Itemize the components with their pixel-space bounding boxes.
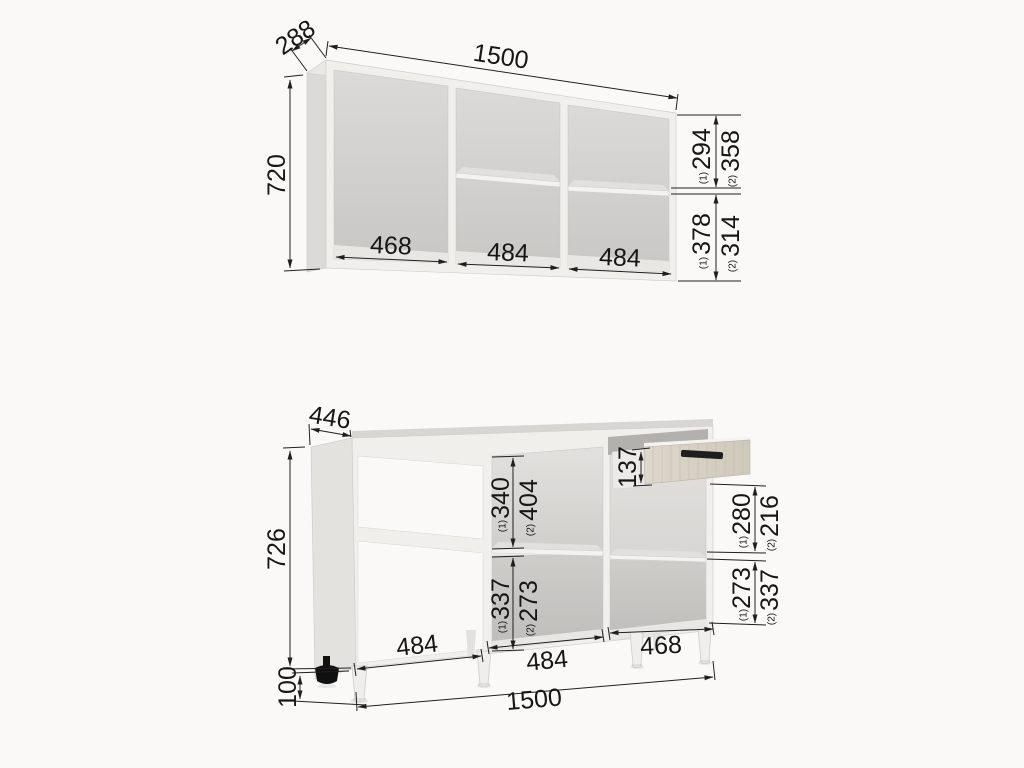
variant-2-superscript: (2): [728, 260, 739, 272]
base-right-top-opt2-label: 216: [756, 495, 784, 537]
base-width-label: 1500: [505, 683, 563, 716]
variant-1-superscript: (1): [739, 536, 750, 548]
wall-height-label: 720: [263, 154, 291, 196]
wall-cabinet-drawing: 288 1500 720 (1) 294 (2) 358 (1) 378 (2)…: [263, 14, 745, 281]
wall-depth-label: 288: [270, 14, 320, 61]
base-mid-top-opt1-label: 340: [487, 477, 515, 519]
cabinet-dimensions-svg: 288 1500 720 (1) 294 (2) 358 (1) 378 (2)…: [0, 0, 1024, 768]
variant-2-superscript: (2): [526, 524, 537, 536]
base-side-panel: [311, 438, 356, 679]
base-inner-width-1-label: 484: [395, 629, 440, 662]
wall-width-label: 1500: [471, 39, 530, 75]
product-dimension-diagram: 288 1500 720 (1) 294 (2) 358 (1) 378 (2)…: [0, 0, 1024, 768]
wall-right-bottom-opt2-label: 314: [717, 215, 745, 257]
base-mid-bottom-opt2-label: 273: [515, 580, 543, 622]
wall-side-panel: [307, 60, 326, 272]
variant-1-superscript: (1): [498, 520, 509, 532]
variant-2-superscript: (2): [767, 613, 778, 625]
base-inner-width-3-label: 468: [639, 631, 682, 661]
wall-inner-width-2-label: 484: [487, 238, 530, 268]
wall-right-dimensions: (1) 294 (2) 358 (1) 378 (2) 314: [671, 115, 745, 281]
base-open-section-top: [358, 456, 483, 539]
variant-1-superscript: (1): [699, 172, 710, 184]
base-inner-width-2-label: 484: [525, 645, 569, 677]
base-right-top-opt1-label: 280: [728, 493, 756, 535]
base-right-bottom-opt2-label: 337: [756, 569, 784, 611]
base-cabinet-drawing: 446 726 100 1500 137: [263, 401, 784, 716]
base-mid-bottom-opt1-label: 337: [487, 578, 515, 620]
variant-1-superscript: (1): [739, 609, 750, 621]
foot-shadow: [318, 684, 336, 688]
base-right-dimensions: (1) 280 (2) 216 (1) 273 (2) 337: [707, 484, 784, 625]
drawer-height-label: 137: [614, 446, 642, 488]
wall-right-bottom-opt1-label: 378: [688, 213, 716, 255]
front-leg: [352, 666, 367, 699]
base-leg-height-label: 100: [274, 666, 302, 708]
variant-2-superscript: (2): [767, 539, 778, 551]
variant-2-superscript: (2): [526, 624, 537, 636]
front-leg: [698, 629, 711, 661]
base-height-label: 726: [263, 528, 291, 570]
wall-depth-dimension: 288: [270, 14, 326, 71]
wall-right-top-opt2-label: 358: [717, 130, 745, 172]
variant-1-superscript: (1): [699, 257, 710, 269]
wall-right-top-opt1-label: 294: [688, 128, 716, 170]
base-right-bottom-opt1-label: 273: [728, 567, 756, 609]
base-mid-top-opt2-label: 404: [515, 479, 543, 521]
variant-1-superscript: (1): [498, 621, 509, 633]
base-depth-dimension: 446: [307, 401, 353, 445]
wall-inner-width-1-label: 468: [370, 231, 413, 261]
wall-inner-width-3-label: 484: [599, 243, 642, 273]
variant-2-superscript: (2): [728, 175, 739, 187]
